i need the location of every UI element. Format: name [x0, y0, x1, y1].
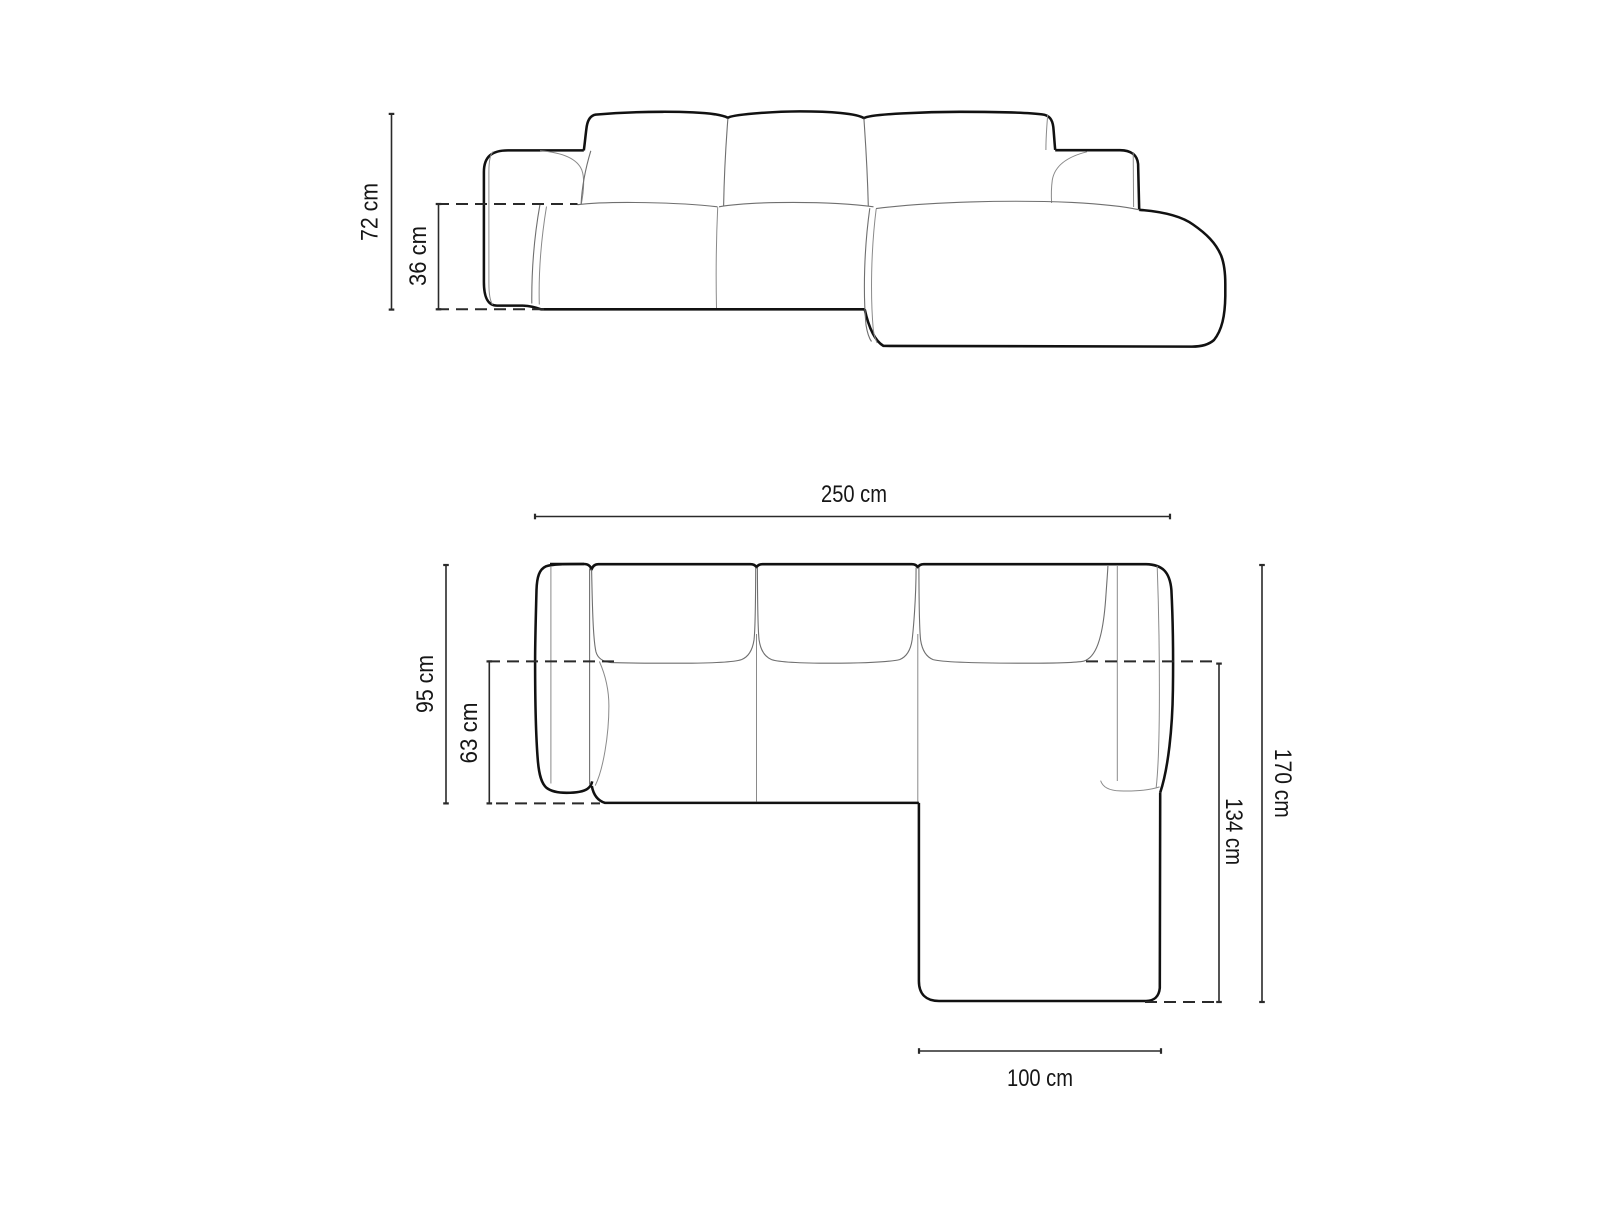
svg-text:72 cm: 72 cm: [357, 183, 384, 241]
svg-text:134 cm: 134 cm: [1220, 798, 1247, 865]
svg-text:36 cm: 36 cm: [405, 226, 432, 286]
svg-text:250 cm: 250 cm: [821, 481, 887, 508]
svg-text:170 cm: 170 cm: [1269, 749, 1296, 818]
svg-text:95 cm: 95 cm: [412, 655, 439, 713]
svg-text:100 cm: 100 cm: [1007, 1065, 1073, 1092]
svg-text:63 cm: 63 cm: [456, 703, 483, 764]
